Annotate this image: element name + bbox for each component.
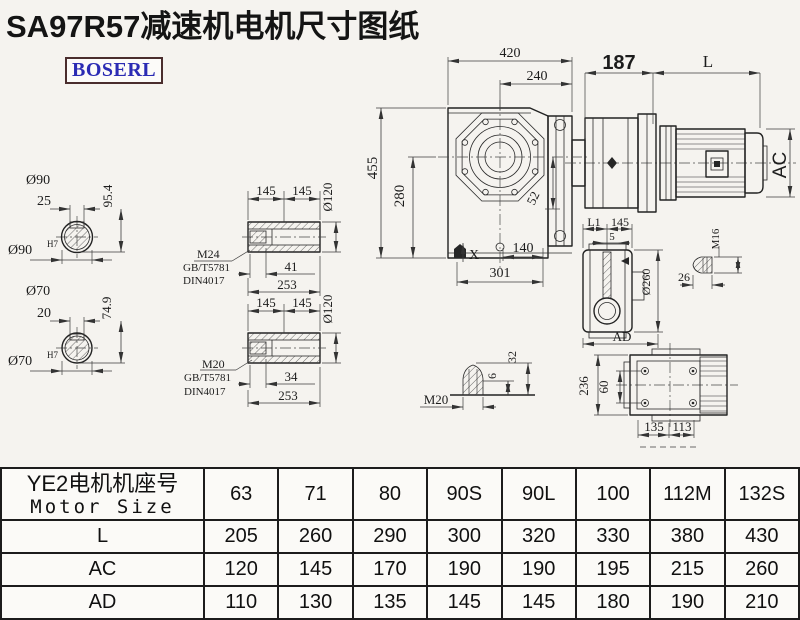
- cell: 190: [427, 553, 501, 586]
- cell: 120: [204, 553, 278, 586]
- dim-hub1-bolt: M24: [197, 247, 220, 261]
- dim-shaft70-fit: Ø70: [8, 354, 32, 369]
- header-motor-size-en: Motor Size: [2, 496, 203, 518]
- table-header-row: YE2电机机座号 Motor Size 63 71 80 90S 90L 100…: [1, 468, 799, 520]
- cell: 210: [725, 586, 799, 619]
- header-size-132s: 132S: [725, 468, 799, 520]
- dim-L: L: [703, 52, 713, 71]
- dim-140: 140: [513, 241, 534, 256]
- cell: 320: [502, 520, 576, 553]
- dim-52: 52: [523, 189, 542, 207]
- header-size-100: 100: [576, 468, 650, 520]
- header-size-63: 63: [204, 468, 278, 520]
- header-motor-size: YE2电机机座号 Motor Size: [1, 468, 204, 520]
- dim-shaft70-fit-sup: H7: [47, 350, 58, 360]
- cell: 130: [278, 586, 352, 619]
- m20-bolt-detail: M20 6 32: [420, 351, 535, 410]
- shaft-90-end-view: Ø90 25 95.4 Ø90 H7: [8, 173, 125, 264]
- dim-tv-135: 135: [644, 419, 664, 434]
- dim-240: 240: [527, 69, 548, 84]
- dim-x-mark: X: [469, 248, 479, 263]
- dim-187: 187: [602, 52, 635, 74]
- cell: 145: [278, 553, 352, 586]
- cell: 110: [204, 586, 278, 619]
- dim-side-5: 5: [609, 231, 615, 243]
- dim-bolt-32: 32: [505, 351, 519, 363]
- cell: 145: [502, 586, 576, 619]
- dim-301: 301: [490, 266, 511, 281]
- motor-side-view: 187 L AC: [565, 52, 796, 212]
- header-size-80: 80: [353, 468, 427, 520]
- dim-420: 420: [500, 46, 521, 61]
- cell: 180: [576, 586, 650, 619]
- dim-455: 455: [365, 157, 381, 180]
- dim-side-od: Ø260: [639, 269, 653, 296]
- dim-hub2-seg1: 145: [256, 295, 276, 310]
- cell: 195: [576, 553, 650, 586]
- cell: 170: [353, 553, 427, 586]
- header-motor-size-cn: YE2电机机座号: [2, 471, 203, 496]
- dim-hub1-std1: GB/T5781: [183, 262, 230, 274]
- dim-hub2-od: Ø120: [320, 295, 335, 324]
- dim-shaft90-fit-sup: H7: [47, 239, 58, 249]
- dim-hub2-depth: 34: [285, 369, 299, 384]
- header-size-71: 71: [278, 468, 352, 520]
- dim-bolt-m20: M20: [424, 392, 449, 407]
- cell: 290: [353, 520, 427, 553]
- cell: 215: [650, 553, 724, 586]
- dim-tv-236: 236: [576, 376, 591, 396]
- page: { "title": "SA97R57减速机电机尺寸图纸", "logo": {…: [0, 0, 800, 613]
- cell: 380: [650, 520, 724, 553]
- dim-side-L1: L1: [587, 215, 600, 229]
- header-size-90s: 90S: [427, 468, 501, 520]
- row-label-L: L: [1, 520, 204, 553]
- cell: 135: [353, 586, 427, 619]
- table-row-L: L 205 260 290 300 320 330 380 430: [1, 520, 799, 553]
- hollow-shaft-section-m20: 145 145 Ø120 M20 GB/T5781 DIN4017 34 253: [184, 295, 341, 407]
- dim-280: 280: [392, 185, 408, 208]
- dim-side-m16: M16: [710, 228, 722, 249]
- dim-hub2-seg2: 145: [292, 295, 312, 310]
- dim-bolt-6: 6: [485, 373, 499, 379]
- dim-hub1-depth: 41: [285, 259, 298, 274]
- cell: 205: [204, 520, 278, 553]
- cell: 260: [725, 553, 799, 586]
- dim-hub2-std2: DIN4017: [184, 386, 226, 398]
- dim-shaft90-kh: 95.4: [100, 184, 115, 207]
- dim-shaft90-dia: Ø90: [26, 173, 50, 188]
- reducer-side-view: L1 145 5 Ø260 AD: [583, 215, 663, 348]
- m16-bolt-detail: M16 26: [678, 228, 742, 289]
- cell: 430: [725, 520, 799, 553]
- cell: 190: [502, 553, 576, 586]
- cell: 260: [278, 520, 352, 553]
- gearbox-top-view: 236 60 135 113: [576, 343, 738, 447]
- table-row-AD: AD 110 130 135 145 145 180 190 210: [1, 586, 799, 619]
- cell: 145: [427, 586, 501, 619]
- dim-hub2-std1: GB/T5781: [184, 372, 231, 384]
- motor-size-table: YE2电机机座号 Motor Size 63 71 80 90S 90L 100…: [0, 467, 800, 620]
- table-row-AC: AC 120 145 170 190 190 195 215 260: [1, 553, 799, 586]
- dim-shaft70-key: 20: [37, 306, 51, 321]
- cell: 190: [650, 586, 724, 619]
- dimension-drawing: Ø90 25 95.4 Ø90 H7 Ø70 20 74.9 Ø70 H7: [0, 0, 800, 466]
- cell: 300: [427, 520, 501, 553]
- dim-tv-60: 60: [596, 381, 611, 394]
- dim-hub1-seg1: 145: [256, 183, 276, 198]
- dim-hub1-len: 253: [277, 277, 297, 292]
- hollow-shaft-section-m24: 145 145 Ø120 M24 GB/T5781 DIN4017 41 253: [183, 183, 341, 296]
- dim-shaft90-key: 25: [37, 194, 51, 209]
- header-size-90l: 90L: [502, 468, 576, 520]
- dim-AC: AC: [770, 152, 791, 178]
- dim-hub2-bolt: M20: [202, 357, 225, 371]
- cell: 330: [576, 520, 650, 553]
- dim-shaft70-dia: Ø70: [26, 284, 50, 299]
- dim-tv-113: 113: [672, 419, 691, 434]
- dim-hub1-od: Ø120: [320, 183, 335, 212]
- dim-hub2-len: 253: [278, 388, 298, 403]
- dim-side-26: 26: [678, 270, 690, 284]
- shaft-70-end-view: Ø70 20 74.9 Ø70 H7: [8, 284, 125, 375]
- dim-hub1-std2: DIN4017: [183, 275, 225, 287]
- dim-shaft90-fit: Ø90: [8, 243, 32, 258]
- dim-side-AD: AD: [613, 329, 632, 344]
- dim-side-145: 145: [611, 215, 629, 229]
- header-size-112m: 112M: [650, 468, 724, 520]
- dim-shaft70-kh: 74.9: [99, 297, 114, 320]
- row-label-AC: AC: [1, 553, 204, 586]
- row-label-AD: AD: [1, 586, 204, 619]
- dim-hub1-seg2: 145: [292, 183, 312, 198]
- gearbox-dimensions: 420 240 455 280 52 X 140 301: [365, 46, 572, 287]
